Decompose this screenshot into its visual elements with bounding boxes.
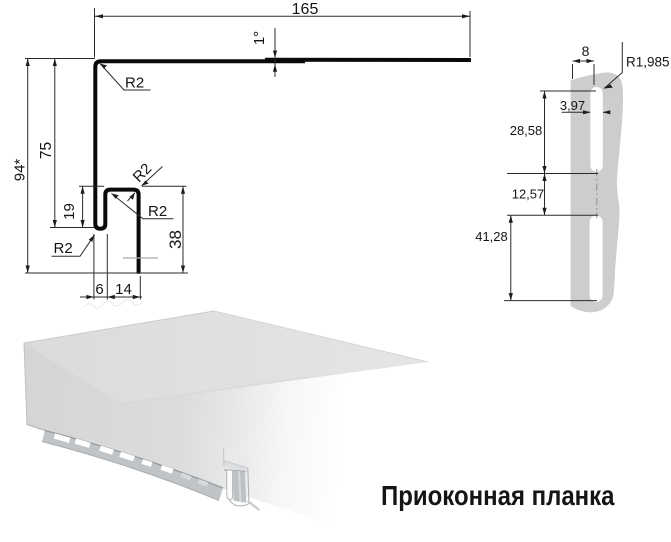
svg-text:38: 38 (166, 230, 185, 249)
svg-text:6: 6 (95, 281, 103, 298)
svg-text:R2: R2 (125, 75, 144, 92)
svg-text:1°: 1° (251, 31, 268, 45)
svg-text:R2: R2 (130, 160, 156, 186)
svg-text:R1,985: R1,985 (626, 55, 670, 70)
svg-text:R2: R2 (54, 240, 73, 257)
svg-text:75: 75 (38, 142, 55, 159)
svg-text:94*: 94* (12, 159, 29, 182)
svg-text:R2: R2 (148, 203, 167, 220)
svg-text:28,58: 28,58 (510, 123, 543, 138)
svg-text:14: 14 (115, 281, 132, 298)
svg-text:41,28: 41,28 (475, 229, 508, 244)
svg-text:8: 8 (582, 43, 590, 59)
svg-text:19: 19 (61, 203, 78, 220)
svg-text:3,97: 3,97 (560, 98, 585, 113)
svg-text:12,57: 12,57 (512, 187, 545, 202)
svg-text:Приоконная планка: Приоконная планка (381, 480, 615, 511)
svg-text:165: 165 (292, 1, 319, 18)
